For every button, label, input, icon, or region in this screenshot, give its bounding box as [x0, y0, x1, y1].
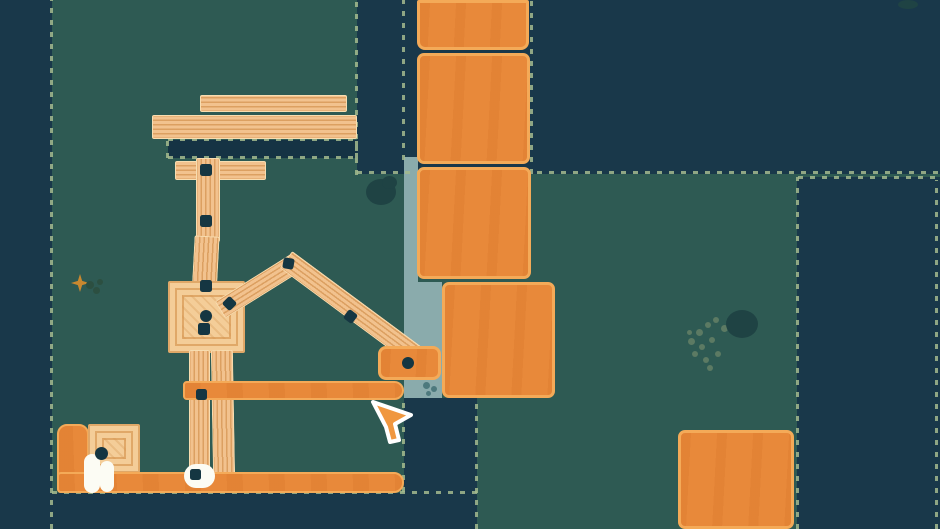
- plank-top-upper[interactable]: [200, 95, 347, 112]
- plank-vertical-4[interactable]: [211, 350, 235, 478]
- water-channel-upper: [404, 157, 418, 283]
- terrain-right-wall: [797, 177, 940, 529]
- joint-bolt[interactable]: [200, 164, 212, 176]
- bush: [382, 176, 397, 189]
- lichen-dot: [692, 351, 698, 357]
- stitch-border: [166, 139, 169, 158]
- bush: [726, 310, 758, 338]
- cursor-arrow-icon: [368, 398, 414, 444]
- joint-bolt[interactable]: [190, 469, 201, 480]
- crate[interactable]: [417, 53, 530, 164]
- joint-bolt[interactable]: [196, 389, 207, 400]
- plank-horizontal[interactable]: [175, 161, 266, 180]
- bush: [898, 0, 918, 9]
- leaf-dot: [93, 287, 100, 294]
- crate[interactable]: [442, 282, 555, 398]
- game-viewport: [0, 0, 940, 529]
- stitch-border: [530, 0, 533, 174]
- terrain-bottom-floor: [52, 493, 404, 529]
- joint-bolt[interactable]: [200, 280, 212, 292]
- terrain-left-wall: [0, 0, 52, 529]
- teal-dot: [426, 391, 431, 396]
- creature-head: [95, 447, 108, 460]
- lichen-dot: [705, 322, 711, 328]
- joint-bolt[interactable]: [402, 357, 414, 369]
- stitch-border: [935, 180, 938, 529]
- stitch-border: [402, 0, 405, 160]
- lichen-dot: [707, 365, 713, 371]
- stitch-border: [798, 176, 940, 179]
- stitch-border: [355, 139, 358, 158]
- plank-vertical-3[interactable]: [189, 350, 210, 476]
- teal-dot: [423, 382, 430, 389]
- stitch-border: [475, 398, 478, 529]
- joint-bolt[interactable]: [282, 257, 295, 270]
- leaf-dot: [97, 279, 103, 285]
- mouse-cursor-arrow: [368, 398, 414, 444]
- lichen-dot: [703, 357, 709, 363]
- terrain-bottom-notch: [404, 398, 477, 529]
- lichen-dot: [709, 337, 715, 343]
- stitch-border: [796, 177, 799, 529]
- stitch-border: [50, 0, 53, 529]
- teal-dot: [431, 386, 437, 392]
- crate[interactable]: [678, 430, 794, 529]
- plank-top-lower[interactable]: [152, 115, 357, 139]
- joint-bolt[interactable]: [198, 323, 210, 335]
- egg-right: [100, 461, 114, 492]
- crate[interactable]: [417, 167, 531, 279]
- egg-left: [84, 454, 100, 493]
- lichen-dot: [715, 351, 721, 357]
- lichen-dot: [696, 329, 703, 336]
- lichen-dot: [687, 330, 692, 335]
- lichen-dot: [699, 344, 705, 350]
- lichen-dot: [688, 338, 695, 345]
- joint-bolt[interactable]: [200, 310, 212, 322]
- joint-bolt[interactable]: [200, 215, 212, 227]
- lichen-dot: [713, 317, 719, 323]
- crate[interactable]: [417, 0, 529, 50]
